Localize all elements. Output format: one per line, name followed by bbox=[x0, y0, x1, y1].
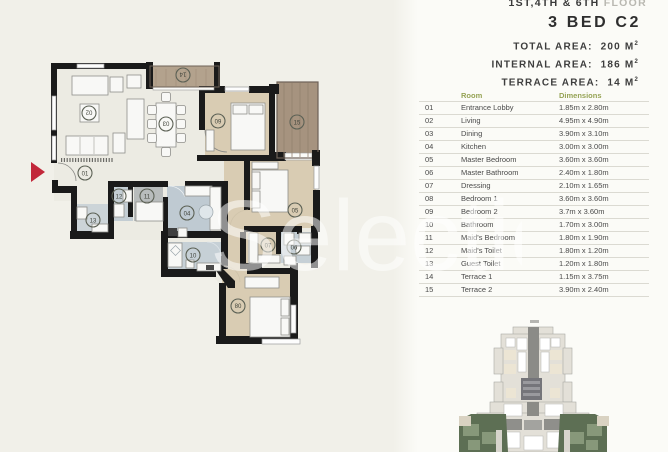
svg-text:09: 09 bbox=[215, 120, 222, 126]
svg-text:12: 12 bbox=[116, 195, 123, 201]
svg-text:08: 08 bbox=[234, 302, 241, 308]
svg-text:11: 11 bbox=[144, 195, 151, 201]
svg-text:02: 02 bbox=[85, 109, 92, 115]
svg-text:15: 15 bbox=[294, 121, 301, 127]
svg-text:01: 01 bbox=[82, 172, 89, 178]
svg-text:10: 10 bbox=[190, 254, 197, 260]
svg-text:14: 14 bbox=[179, 71, 186, 77]
svg-text:03: 03 bbox=[162, 120, 169, 126]
svg-text:13: 13 bbox=[90, 219, 97, 225]
svg-text:04: 04 bbox=[184, 212, 191, 218]
